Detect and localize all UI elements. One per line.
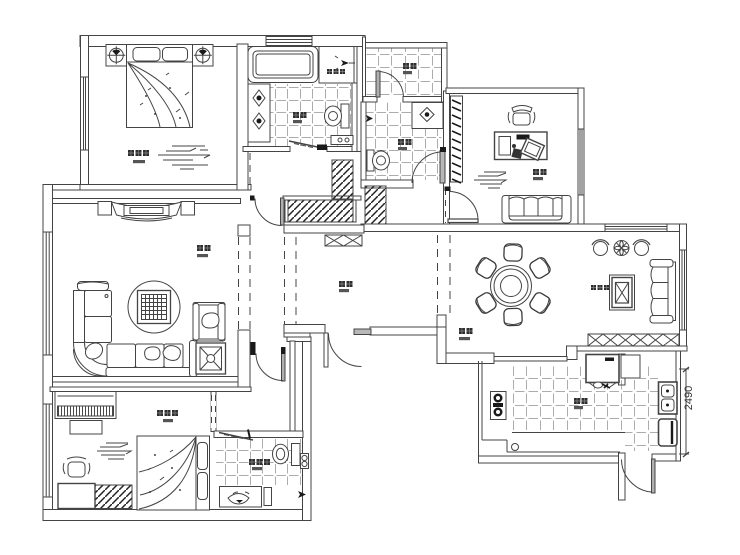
svg-text:2490: 2490 — [683, 386, 695, 410]
